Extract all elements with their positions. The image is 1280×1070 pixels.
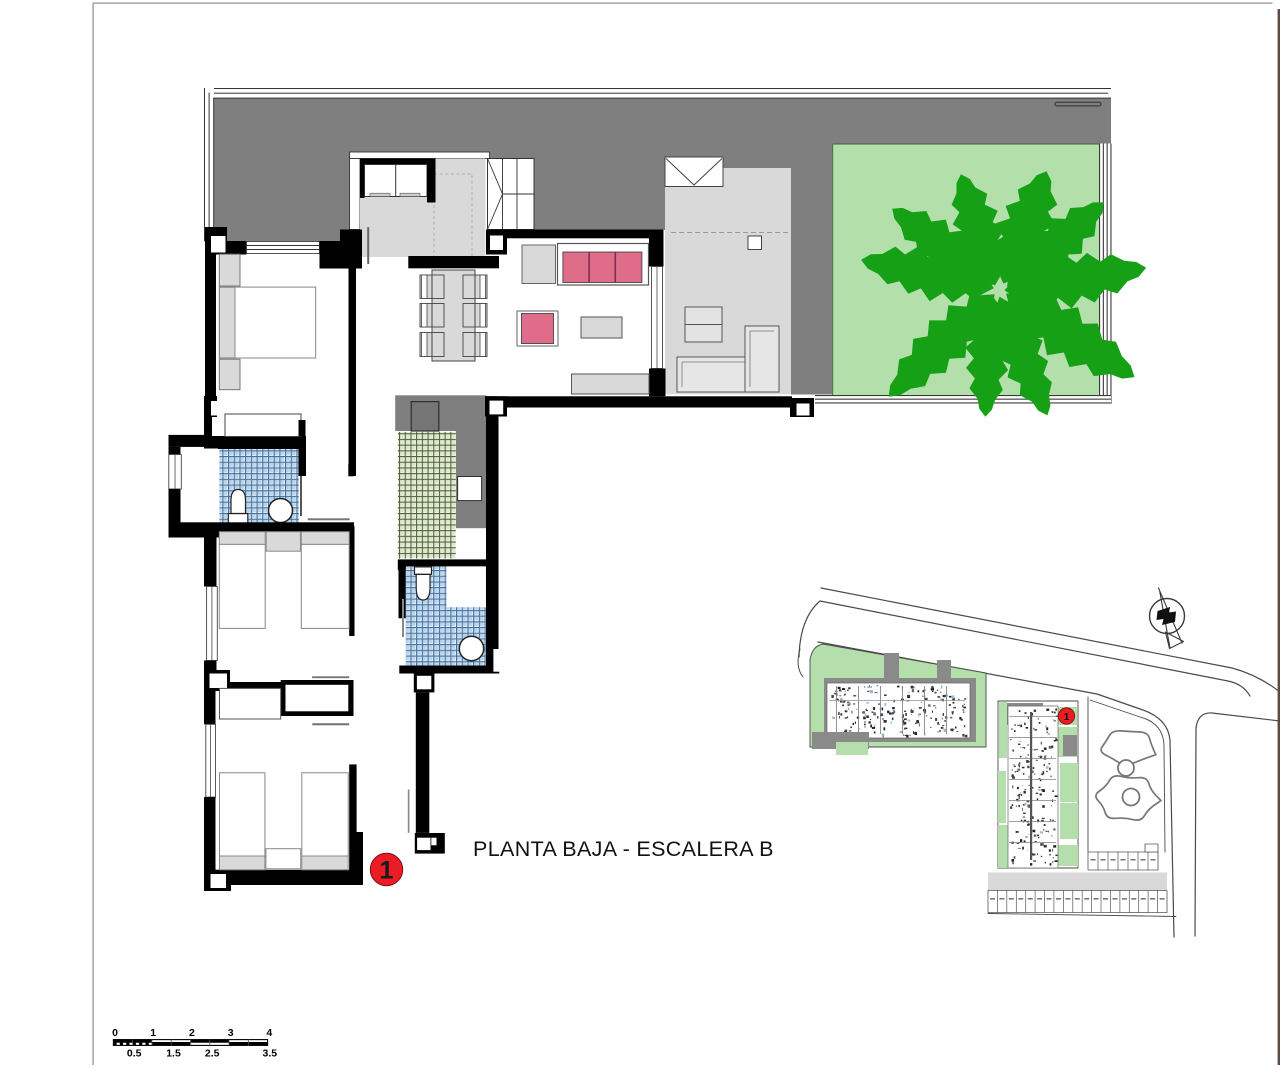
svg-text:0: 0 bbox=[112, 1027, 118, 1039]
svg-text:2: 2 bbox=[189, 1027, 195, 1039]
svg-text:2.5: 2.5 bbox=[205, 1048, 220, 1060]
svg-text:1: 1 bbox=[1064, 711, 1070, 723]
svg-text:1: 1 bbox=[380, 857, 394, 885]
svg-text:3.5: 3.5 bbox=[262, 1048, 277, 1060]
svg-text:0.5: 0.5 bbox=[127, 1048, 142, 1060]
svg-text:1: 1 bbox=[150, 1027, 156, 1039]
svg-text:PLANTA BAJA - ESCALERA B: PLANTA BAJA - ESCALERA B bbox=[473, 837, 774, 861]
svg-text:3: 3 bbox=[228, 1027, 234, 1039]
svg-text:4: 4 bbox=[266, 1027, 272, 1039]
svg-text:1.5: 1.5 bbox=[166, 1048, 181, 1060]
